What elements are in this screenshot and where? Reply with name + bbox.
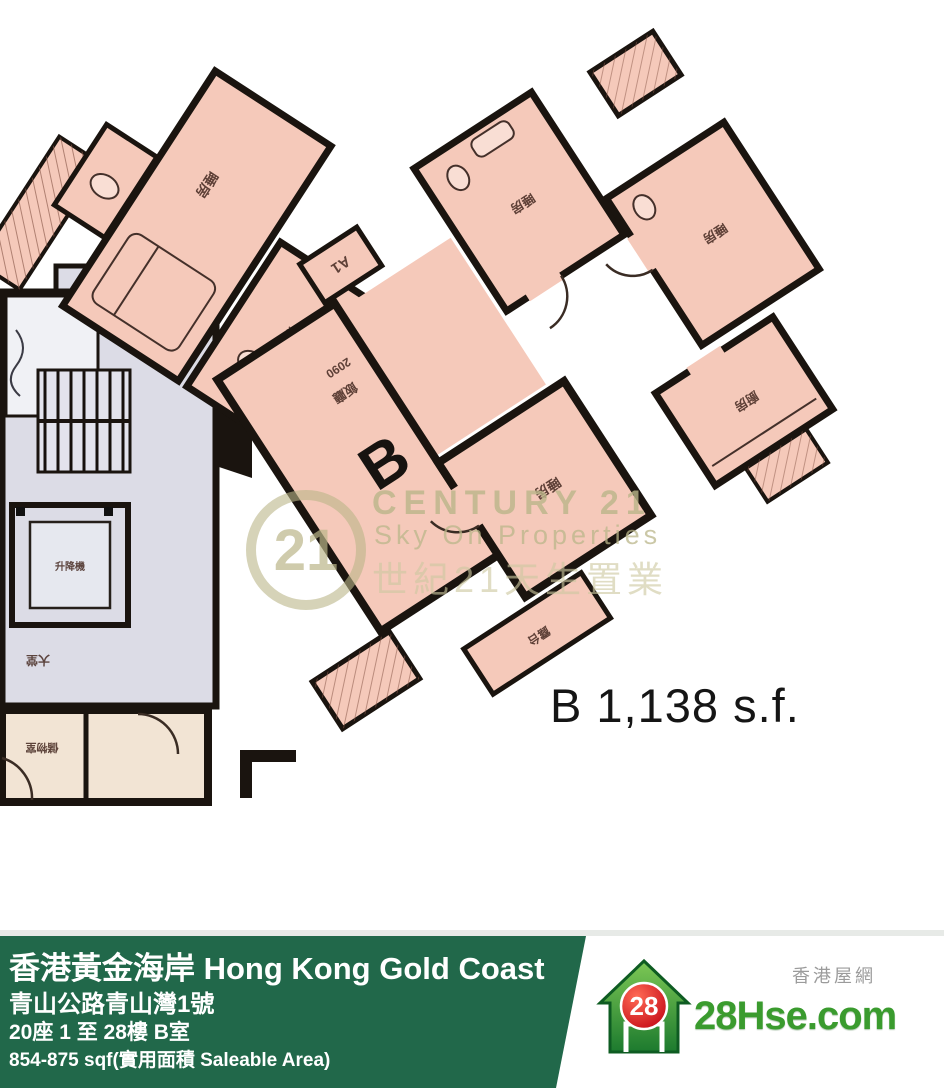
estate-title: 香港黃金海岸 Hong Kong Gold Coast bbox=[9, 943, 545, 988]
store-label: 儲物室 bbox=[26, 741, 60, 755]
top-platform bbox=[590, 31, 681, 115]
footer-banner: 香港黃金海岸 Hong Kong Gold Coast 青山公路青山灣1號 20… bbox=[0, 930, 944, 1088]
footer-top-strip bbox=[0, 930, 944, 936]
estate-block-floor-unit: 20座 1 至 28樓 B室 bbox=[9, 1016, 190, 1046]
28hse-logo-text: 28Hse.com bbox=[694, 994, 896, 1039]
unit-area-text: B 1,138 s.f. bbox=[550, 678, 800, 733]
century21-ring-number: 21 bbox=[274, 517, 339, 584]
floorplan-drawing: 升降機 大堂 儲物室 睡房 bbox=[0, 0, 944, 930]
adjacent-area: 儲物室 bbox=[2, 710, 296, 802]
balcony-1 bbox=[312, 632, 420, 729]
floorplan-page: 升降機 大堂 儲物室 睡房 bbox=[0, 0, 944, 1088]
lobby-label: 大堂 bbox=[26, 653, 50, 668]
estate-saleable-area: 854-875 sqf(實用面積 Saleable Area) bbox=[9, 1045, 330, 1072]
watermark-agency-zh: 世紀21天生置業 bbox=[372, 551, 668, 603]
watermark-agency-en: Sky On Properties bbox=[374, 520, 661, 551]
28-badge-number: 28 bbox=[630, 991, 659, 1021]
century21-ring-logo: 21 bbox=[246, 490, 366, 610]
lift-label: 升降機 bbox=[55, 560, 85, 573]
28hse-house-icon: 28 bbox=[596, 958, 692, 1058]
estate-address: 青山公路青山灣1號 bbox=[9, 984, 214, 1019]
watermark-brand: CENTURY 21 bbox=[372, 484, 652, 523]
site-tagline: 香港屋網 bbox=[792, 962, 876, 988]
